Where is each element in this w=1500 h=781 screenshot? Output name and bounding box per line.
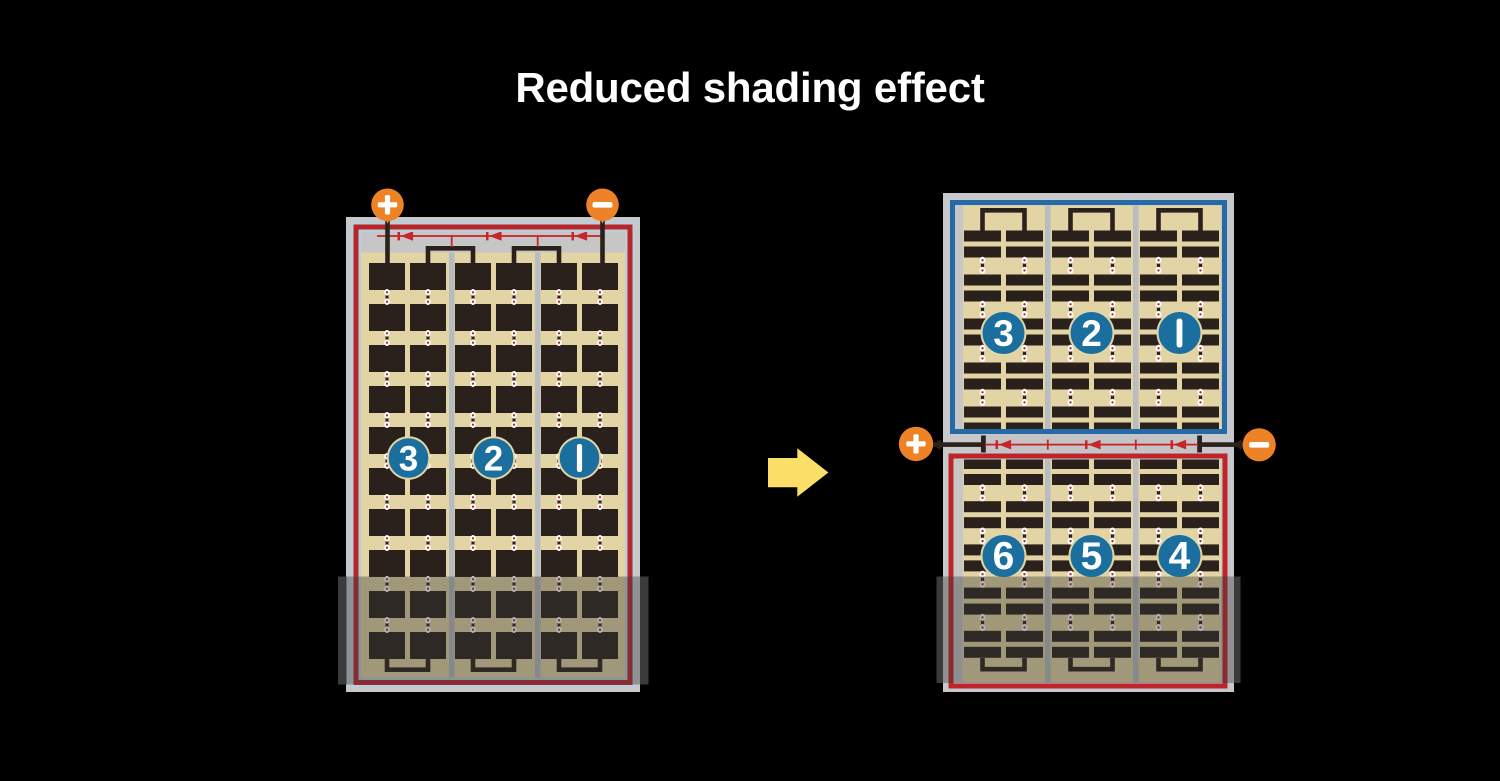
svg-text:5: 5 xyxy=(1081,535,1103,578)
svg-text:3: 3 xyxy=(399,439,418,478)
svg-text:4: 4 xyxy=(1169,535,1191,578)
svg-text:2: 2 xyxy=(484,439,503,478)
svg-text:2: 2 xyxy=(1081,313,1102,354)
svg-text:3: 3 xyxy=(993,313,1014,354)
svg-text:6: 6 xyxy=(993,535,1015,578)
